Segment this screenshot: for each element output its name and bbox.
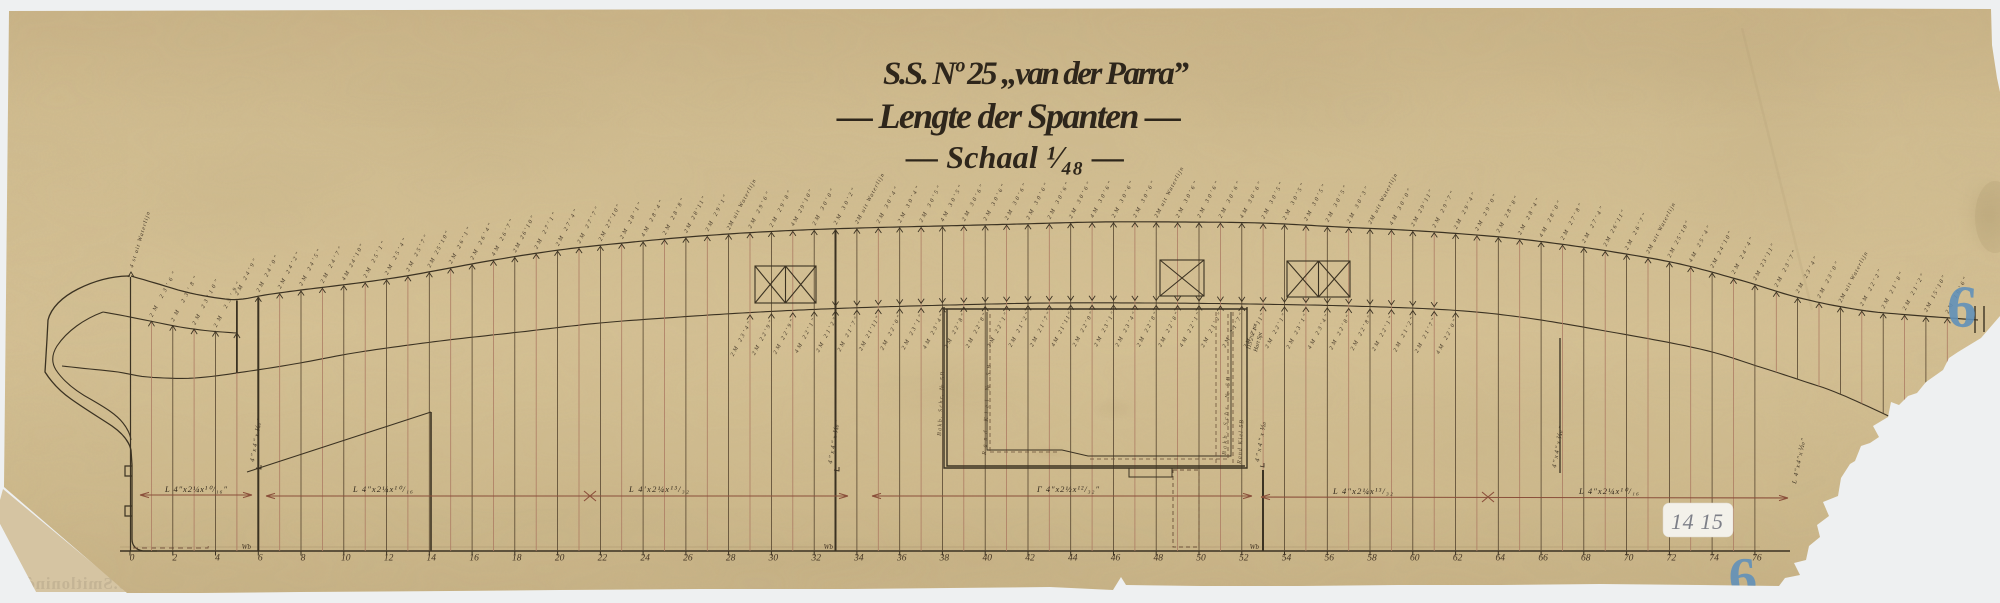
svg-text:12: 12 (384, 554, 394, 564)
svg-text:Γ 4″x2½x¹²/₃₂″: Γ 4″x2½x¹²/₃₂″ (1036, 484, 1099, 494)
svg-text:62: 62 (1453, 554, 1463, 564)
svg-text:70: 70 (1624, 554, 1634, 564)
svg-text:32: 32 (810, 554, 821, 564)
svg-text:64: 64 (1496, 554, 1506, 564)
svg-text:72: 72 (1667, 554, 1677, 564)
svg-text:14: 14 (427, 554, 437, 564)
svg-text:8: 8 (301, 554, 306, 564)
svg-text:56: 56 (1325, 554, 1335, 564)
svg-text:18: 18 (512, 554, 522, 564)
svg-text:26: 26 (683, 554, 693, 564)
svg-text:— Lengte der Spanten —: — Lengte der Spanten — (836, 96, 1181, 136)
svg-text:36: 36 (896, 554, 907, 564)
svg-text:14 15: 14 15 (1671, 509, 1723, 534)
svg-text:54: 54 (1282, 554, 1292, 564)
svg-text:30: 30 (768, 554, 779, 564)
svg-text:L 4″x2¼x¹⁰/₁₆: L 4″x2¼x¹⁰/₁₆ (1578, 486, 1639, 496)
svg-text:74: 74 (1709, 554, 1719, 564)
svg-text:60: 60 (1410, 554, 1420, 564)
svg-text:50: 50 (1196, 554, 1206, 564)
svg-text:34: 34 (853, 554, 864, 564)
svg-text:22: 22 (598, 554, 608, 564)
svg-text:42: 42 (1025, 554, 1035, 564)
svg-text:— Schaal ¹⁄₄₈ —: — Schaal ¹⁄₄₈ — (905, 139, 1124, 175)
svg-text:58: 58 (1367, 554, 1377, 564)
svg-text:44: 44 (1068, 554, 1078, 564)
svg-text:46: 46 (1111, 554, 1121, 564)
svg-text:16: 16 (469, 554, 479, 564)
svg-text:4: 4 (215, 554, 220, 564)
svg-text:10: 10 (341, 554, 351, 564)
svg-text:L 4″x2¼x¹⁰/₁₆″: L 4″x2¼x¹⁰/₁₆″ (164, 484, 227, 494)
svg-text:L 4″x2¼x¹³/₃₂: L 4″x2¼x¹³/₃₂ (1332, 486, 1393, 496)
svg-text:Wb: Wb (1250, 543, 1260, 551)
svg-text:66: 66 (1538, 554, 1548, 564)
svg-text:48: 48 (1153, 554, 1163, 564)
svg-text:Wb: Wb (824, 543, 834, 551)
svg-text:38: 38 (939, 554, 950, 564)
svg-text:52: 52 (1239, 554, 1249, 564)
svg-text:2: 2 (172, 554, 177, 564)
svg-text:40: 40 (982, 554, 992, 564)
svg-text:20: 20 (555, 554, 565, 564)
svg-text:Wb: Wb (242, 543, 252, 551)
svg-text:24: 24 (640, 554, 650, 564)
svg-text:0: 0 (130, 554, 135, 564)
svg-text:S.S. Nº 25 „van der Parra”: S.S. Nº 25 „van der Parra” (883, 56, 1189, 92)
svg-text:L 4″x2¼x¹⁰/₁₆: L 4″x2¼x¹⁰/₁₆ (352, 484, 413, 494)
svg-text:28: 28 (726, 554, 736, 564)
svg-text:6: 6 (258, 554, 263, 564)
svg-text:68: 68 (1581, 554, 1591, 564)
svg-text:6: 6 (1945, 273, 1978, 340)
